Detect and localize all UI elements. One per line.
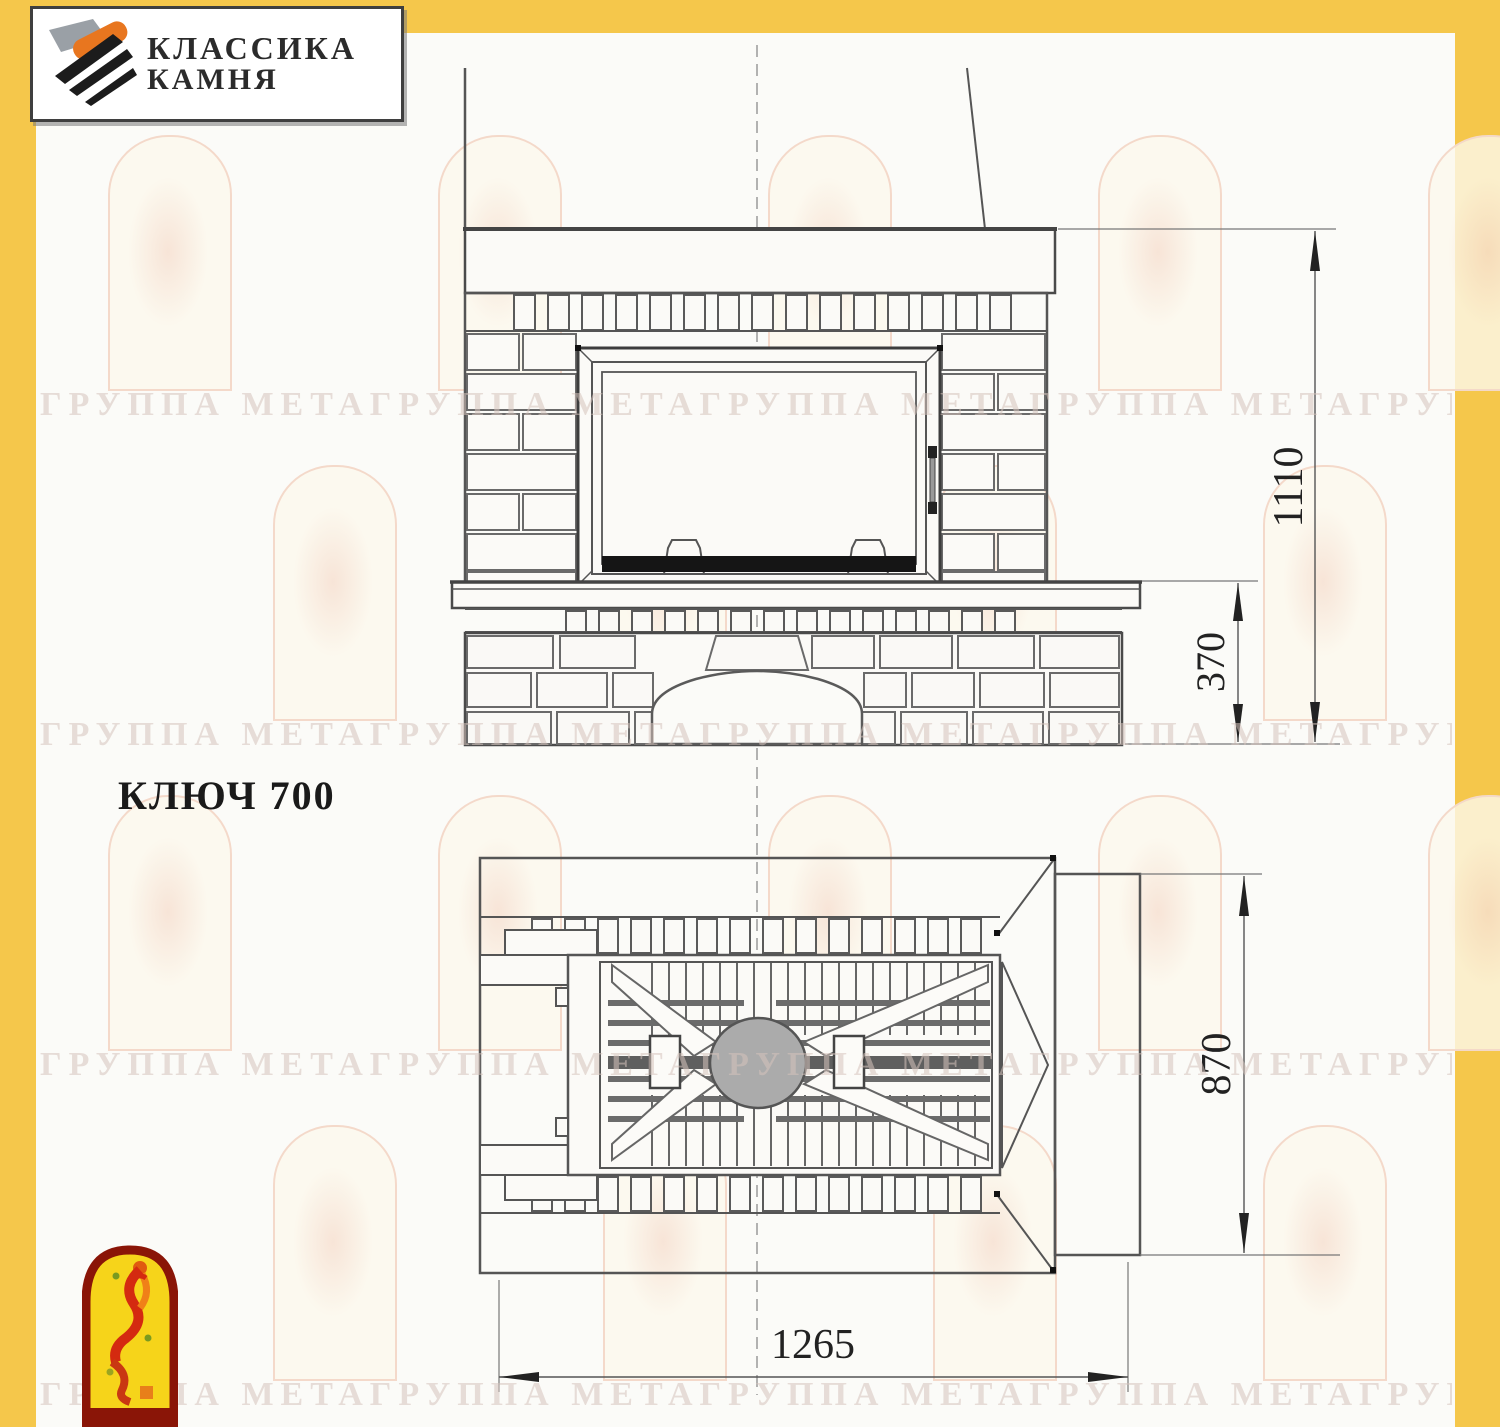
plan-splay-bottom (998, 1196, 1055, 1273)
page: 1110 370 870 (0, 0, 1500, 1427)
logo-line1: КЛАССИКА (147, 32, 357, 65)
plan-splay-top (998, 858, 1055, 935)
dancing-flame-icon (82, 1242, 178, 1427)
technical-drawing: 1110 370 870 (0, 0, 1500, 1427)
front-height-label: 1110 (1266, 447, 1312, 528)
grate-bar (602, 556, 916, 572)
chimney-diagonal-line (967, 68, 985, 229)
dimension-plan-depth: 870 (1194, 876, 1249, 1253)
firebox-door (575, 345, 943, 588)
dentil-course-top (514, 295, 1011, 330)
plan-door-swing (1002, 962, 1048, 1168)
base-arch-opening (652, 671, 862, 744)
stone-stack-icon (41, 16, 141, 112)
keystone (706, 636, 808, 670)
dentil-course-base (566, 611, 1015, 632)
brick-column-left (467, 334, 576, 583)
plan-depth-label: 870 (1194, 1033, 1240, 1096)
dimension-hearth-height: 370 (1188, 583, 1243, 742)
hearth-height-label: 370 (1188, 632, 1233, 692)
plan-firebox-insert (556, 955, 1048, 1175)
mantel-shelf (465, 229, 1055, 293)
stone-base (465, 633, 1122, 745)
brick-column-right (942, 334, 1045, 583)
plan-view (480, 855, 1140, 1273)
plan-flue-outlet (710, 1018, 806, 1108)
plan-hearth-platform (1055, 874, 1140, 1255)
hearth-shelf (452, 582, 1140, 608)
company-logo: КЛАССИКА КАМНЯ (30, 6, 404, 122)
door-handle (930, 458, 935, 502)
dimension-front-height: 1110 (1266, 231, 1320, 742)
logo-line2: КАМНЯ (147, 65, 357, 96)
dimension-plan-width: 1265 (499, 1262, 1128, 1392)
product-title: КЛЮЧ 700 (118, 772, 336, 819)
plan-width-label: 1265 (771, 1322, 855, 1368)
